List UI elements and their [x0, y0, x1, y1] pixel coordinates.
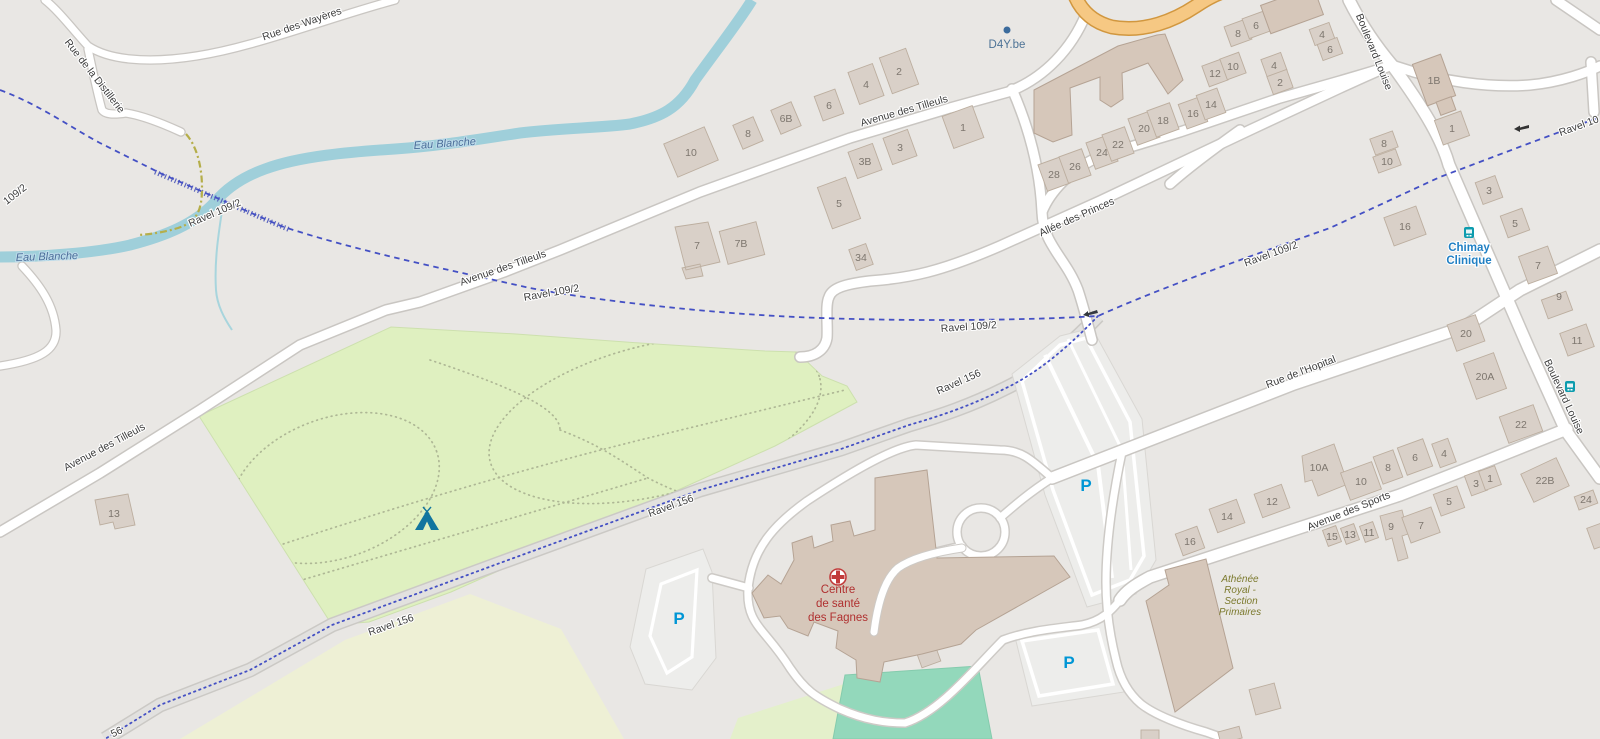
svg-text:3: 3	[1473, 478, 1479, 490]
svg-text:34: 34	[855, 252, 867, 264]
svg-text:Chimay: Chimay	[1448, 242, 1490, 254]
svg-text:P: P	[1080, 476, 1091, 495]
svg-text:12: 12	[1266, 496, 1278, 508]
svg-text:20: 20	[1460, 328, 1472, 340]
svg-text:28: 28	[1048, 169, 1060, 181]
svg-text:9: 9	[1556, 291, 1562, 303]
svg-text:22: 22	[1515, 419, 1527, 431]
svg-text:7B: 7B	[735, 238, 748, 250]
svg-text:20: 20	[1138, 123, 1150, 135]
svg-text:22B: 22B	[1536, 475, 1555, 487]
svg-text:D4Y.be: D4Y.be	[989, 39, 1026, 51]
svg-text:6: 6	[826, 100, 832, 112]
svg-text:5: 5	[1446, 496, 1452, 508]
svg-text:22: 22	[1112, 139, 1124, 151]
svg-text:24: 24	[1096, 147, 1108, 159]
svg-text:20A: 20A	[1476, 371, 1495, 383]
svg-text:26: 26	[1069, 161, 1081, 173]
svg-text:6: 6	[1253, 20, 1259, 32]
svg-text:9: 9	[1388, 521, 1394, 533]
svg-text:5: 5	[836, 198, 842, 210]
svg-text:6B: 6B	[780, 113, 793, 125]
svg-text:12: 12	[1209, 68, 1221, 80]
svg-text:4: 4	[863, 79, 869, 91]
svg-text:3: 3	[897, 142, 903, 154]
svg-text:des Fagnes: des Fagnes	[808, 612, 868, 624]
svg-text:6: 6	[1327, 44, 1333, 56]
svg-text:14: 14	[1205, 99, 1217, 111]
svg-text:5: 5	[1512, 218, 1518, 230]
svg-text:10: 10	[685, 147, 697, 159]
svg-text:8: 8	[745, 128, 751, 140]
svg-text:Section: Section	[1224, 596, 1258, 607]
svg-text:4: 4	[1441, 448, 1447, 460]
svg-text:7: 7	[1535, 260, 1541, 272]
svg-text:11: 11	[1364, 527, 1375, 539]
svg-text:1: 1	[960, 122, 966, 134]
svg-text:Clinique: Clinique	[1446, 255, 1491, 267]
svg-text:10: 10	[1381, 156, 1393, 168]
svg-text:10: 10	[1227, 61, 1239, 73]
svg-text:11: 11	[1572, 335, 1583, 347]
svg-text:3: 3	[1486, 185, 1492, 197]
svg-text:4: 4	[1319, 29, 1325, 41]
svg-text:13: 13	[1344, 529, 1356, 541]
svg-text:3B: 3B	[859, 156, 872, 168]
svg-text:18: 18	[1157, 115, 1169, 127]
svg-text:16: 16	[1187, 108, 1199, 120]
svg-text:10: 10	[1355, 476, 1367, 488]
svg-text:8: 8	[1381, 138, 1387, 150]
svg-text:1: 1	[1449, 123, 1455, 135]
svg-text:Royal -: Royal -	[1224, 585, 1256, 596]
svg-text:15: 15	[1326, 531, 1338, 543]
svg-text:7: 7	[694, 240, 700, 252]
svg-text:Eau Blanche: Eau Blanche	[16, 250, 79, 264]
svg-text:P: P	[1063, 653, 1074, 672]
svg-text:1B: 1B	[1428, 75, 1441, 87]
svg-text:24: 24	[1580, 494, 1592, 506]
svg-text:Athénée: Athénée	[1220, 574, 1259, 585]
svg-text:4: 4	[1271, 60, 1277, 72]
svg-text:2: 2	[896, 66, 902, 78]
svg-text:14: 14	[1221, 511, 1233, 523]
svg-text:1: 1	[1487, 473, 1493, 485]
svg-text:de santé: de santé	[816, 598, 860, 610]
svg-text:8: 8	[1235, 28, 1241, 40]
svg-text:16: 16	[1184, 536, 1196, 548]
svg-text:10A: 10A	[1310, 462, 1329, 474]
svg-text:6: 6	[1412, 452, 1418, 464]
svg-text:2: 2	[1277, 77, 1283, 89]
svg-text:Centre: Centre	[821, 584, 856, 596]
svg-text:16: 16	[1399, 221, 1411, 233]
svg-text:Primaires: Primaires	[1219, 607, 1261, 618]
svg-text:13: 13	[108, 508, 120, 520]
svg-text:7: 7	[1418, 520, 1424, 532]
svg-text:P: P	[673, 609, 684, 628]
svg-text:8: 8	[1385, 462, 1391, 474]
